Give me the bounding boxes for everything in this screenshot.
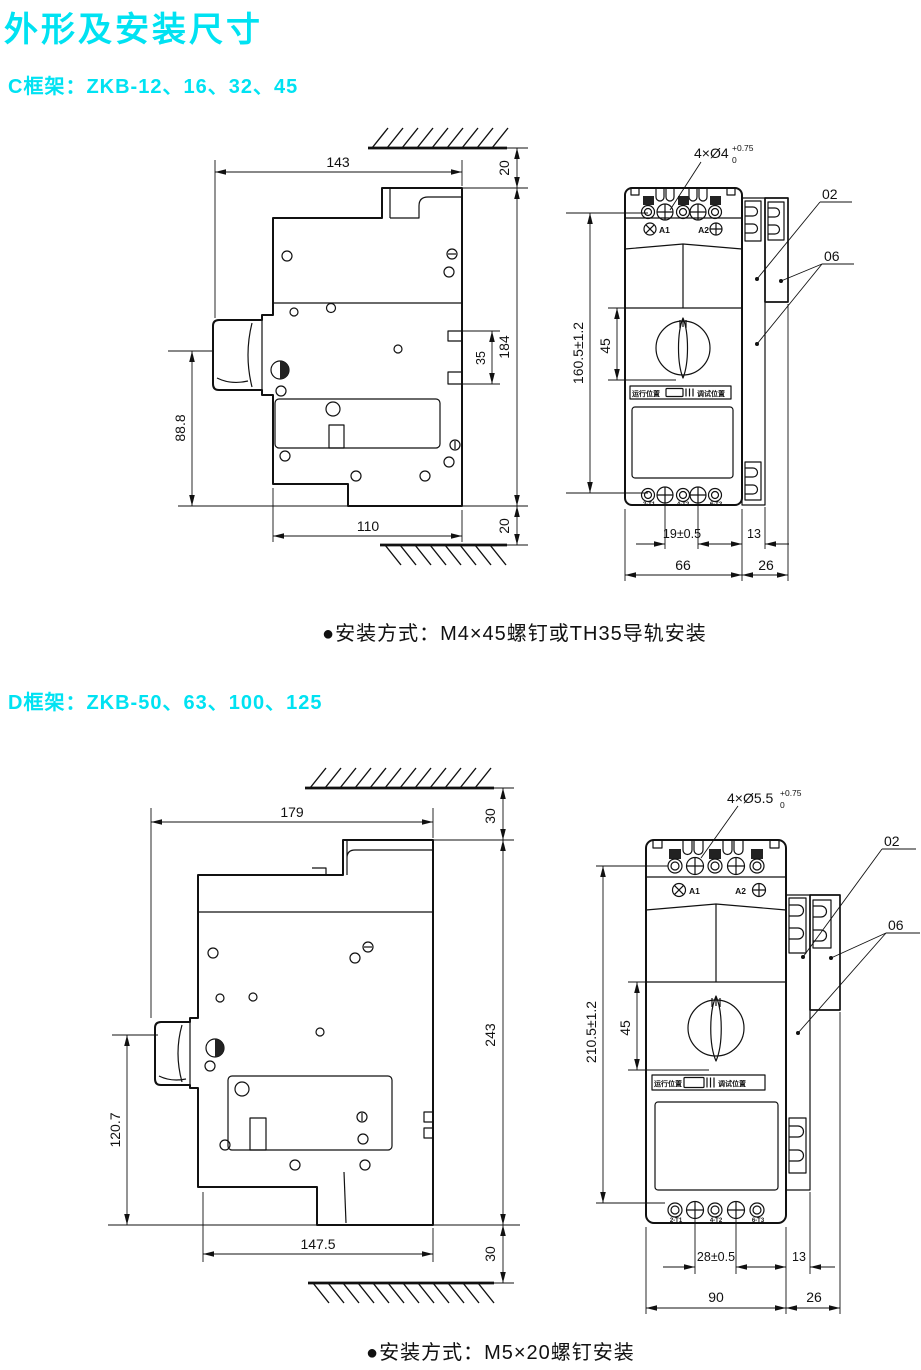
d-front-bottom-terminals: 2-T1 4-T2 6-T3	[668, 1202, 765, 1225]
c-run-position-label: 运行位置	[632, 389, 660, 398]
d-hole-tol-upper: +0.75	[780, 788, 802, 798]
dim-d-front-height: 210.5±1.2	[583, 1001, 599, 1063]
wall-hatch-top-d	[305, 768, 494, 788]
d-side-dimensions: 179 30 243 120.7 147.5 30	[107, 788, 514, 1283]
dim-c-rail: 13	[747, 527, 761, 541]
d-rotary-knob	[688, 996, 744, 1061]
c-hole-tol-lower: 0	[732, 155, 737, 165]
datasheet-page: 外形及安装尺寸 C框架：ZKB-12、16、32、45 D框架：ZKB-50、6…	[0, 0, 921, 1370]
c-hole-tol-upper: +0.75	[732, 143, 754, 153]
d-label-window	[655, 1102, 778, 1190]
c-front-top-terminals	[631, 188, 735, 220]
dim-c-clip: 35	[474, 351, 488, 365]
d-din-rail-bracket	[786, 895, 840, 1190]
dim-d-top-width: 179	[280, 804, 304, 820]
dim-d-total-height: 243	[482, 1023, 498, 1047]
d-side-body	[155, 840, 433, 1225]
d-terminal-label-t2: 4-T2	[710, 1218, 723, 1224]
c-terminal-label-t3: 6-T3	[710, 502, 723, 508]
dim-c-pitch: 19±0.5	[663, 527, 701, 541]
d-callout-02: 02	[884, 833, 900, 849]
wall-hatch-top	[368, 128, 508, 148]
c-coil-terminals: A1 A2	[644, 223, 722, 235]
c-callout-06: 06	[824, 248, 840, 264]
c-callout-02: 02	[822, 186, 838, 202]
dim-c-bottom-gap: 20	[496, 518, 512, 534]
technical-drawing: 143 20 184 35 88.8 110	[0, 0, 921, 1370]
c-din-rail-bracket	[742, 198, 788, 505]
c-position-strip: 运行位置 调试位置	[630, 386, 731, 399]
dim-d-side-width: 26	[806, 1289, 822, 1305]
dim-c-front-height: 160.5±1.2	[570, 322, 586, 384]
d-hole-tol-lower: 0	[780, 800, 785, 810]
dim-c-side-width: 26	[758, 557, 774, 573]
d-front-view: A1 A2 运行位置 调试位置	[583, 788, 920, 1314]
dim-d-top-gap: 30	[482, 808, 498, 824]
c-side-body	[213, 188, 462, 506]
c-label-window	[632, 407, 733, 478]
dim-d-rail: 13	[792, 1250, 806, 1264]
c-callouts: 02 06	[755, 186, 854, 346]
c-terminal-label-t1: 2-T1	[643, 502, 656, 508]
d-terminal-label-t3: 6-T3	[752, 1218, 765, 1224]
c-coil-label-a1: A1	[659, 225, 670, 235]
d-callout-06: 06	[888, 917, 904, 933]
c-hole-label: 4×Ø4	[694, 145, 729, 161]
c-front-body	[625, 188, 742, 505]
c-test-position-label: 调试位置	[697, 389, 725, 398]
c-terminal-label-t2: 4-T2	[677, 502, 690, 508]
dim-c-front-width: 66	[675, 557, 691, 573]
d-test-position-label: 调试位置	[718, 1079, 746, 1088]
dim-d-knob: 45	[617, 1020, 633, 1036]
dim-c-top-gap: 20	[496, 160, 512, 176]
d-coil-terminals: A1 A2	[673, 884, 766, 897]
d-front-body	[646, 840, 786, 1223]
dim-d-front-width: 90	[708, 1289, 724, 1305]
c-side-view: 143 20 184 35 88.8 110	[168, 128, 528, 565]
wall-hatch-bottom	[380, 545, 507, 565]
d-callouts: 02 06	[796, 833, 920, 1035]
d-side-view: 179 30 243 120.7 147.5 30	[107, 768, 520, 1303]
dim-d-pitch: 28±0.5	[697, 1250, 735, 1264]
d-coil-label-a2: A2	[735, 886, 746, 896]
c-coil-label-a2: A2	[698, 225, 709, 235]
c-front-bottom-terminals: 2-T1 4-T2 6-T3	[642, 487, 723, 508]
dim-d-body-height: 120.7	[107, 1112, 123, 1147]
c-front-seams	[625, 218, 742, 308]
d-run-position-label: 运行位置	[654, 1079, 682, 1088]
dim-c-bottom-width: 110	[357, 518, 380, 534]
dim-d-bottom-width: 147.5	[300, 1236, 335, 1252]
wall-hatch-bottom-d	[308, 1283, 494, 1303]
c-front-view: A1 A2 运行位置 调试位置	[566, 143, 854, 581]
d-position-strip: 运行位置 调试位置	[652, 1075, 765, 1090]
d-terminal-label-t1: 2-T1	[670, 1218, 683, 1224]
dim-c-total-height: 184	[496, 335, 512, 359]
dim-c-top-width: 143	[326, 154, 350, 170]
d-front-top-terminals	[653, 840, 779, 875]
dim-d-bottom-gap: 30	[482, 1246, 498, 1262]
d-coil-label-a1: A1	[689, 886, 700, 896]
dim-c-knob: 45	[597, 338, 613, 354]
c-rotary-knob	[656, 318, 710, 378]
d-hole-label: 4×Ø5.5	[727, 790, 774, 806]
dim-c-body-height: 88.8	[172, 414, 188, 441]
